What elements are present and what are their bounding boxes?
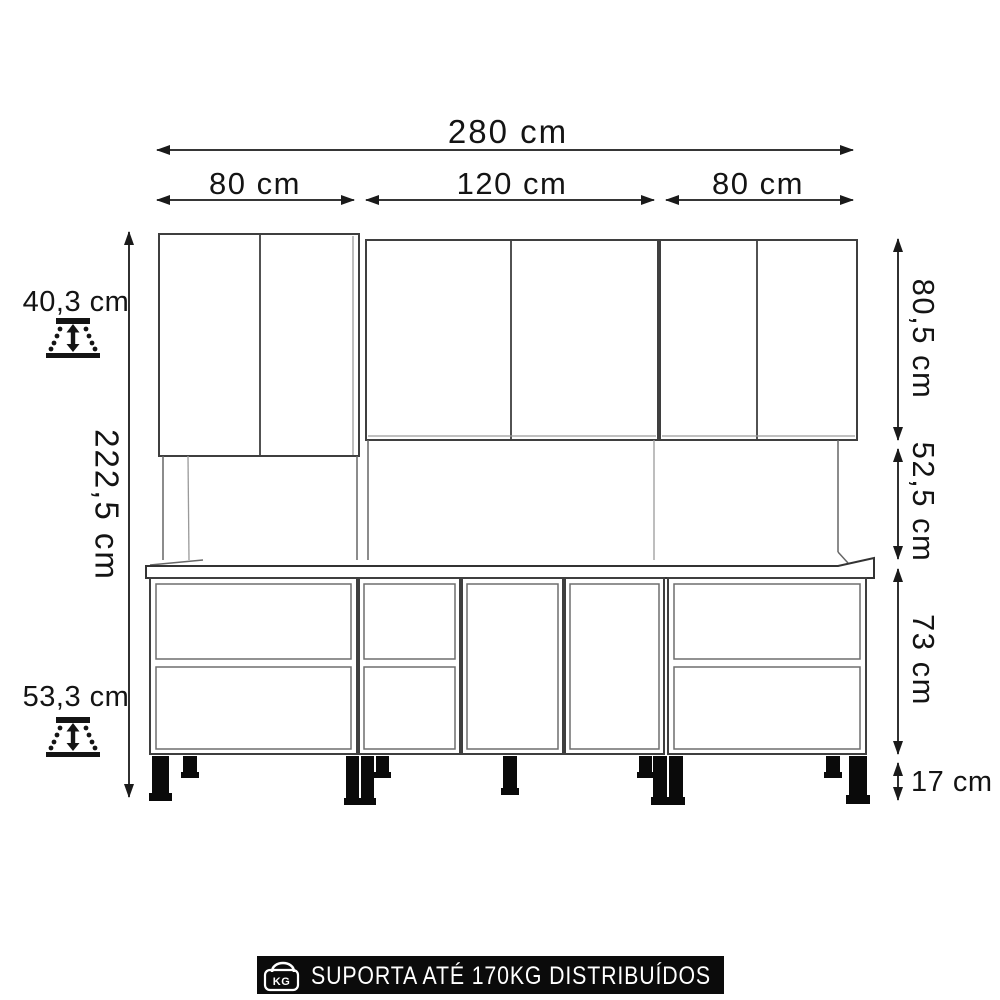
cabinet-drawing [146,234,874,805]
depth-icon [46,318,100,358]
leg [503,756,517,789]
leg-foot [667,797,685,805]
upper-left-body [159,234,359,456]
dim-right-module-label: 80 cm [712,166,804,201]
leg [826,756,840,773]
leg-foot [501,788,519,795]
leg-foot [149,793,172,801]
dim-left-module-label: 80 cm [209,166,301,201]
leg-foot [651,797,669,805]
leg [639,756,652,773]
drawer-front [156,584,351,659]
base-drawer-unit-center [359,578,460,754]
leg-foot [846,795,870,804]
depth-icon [46,717,100,757]
base-door-cabinet-right [565,578,664,754]
countertop-slab [146,558,874,578]
support-banner: KG SUPORTA ATÉ 170KG DISTRIBUÍDOS [257,956,724,994]
leg-foot [374,772,391,778]
drawer-front [364,584,455,659]
countertop-back-edge [150,560,203,565]
dim-total-height-label: 222,5 cm [88,429,125,581]
leg [361,756,374,800]
support-banner-label: SUPORTA ATÉ 170KG DISTRIBUÍDOS [311,961,711,990]
back-panel-flare [838,552,848,563]
kg-icon-label: KG [273,976,291,988]
dim-upper-height-label: 80,5 cm [906,279,941,400]
upper-cabinet-right [660,240,857,440]
leg [376,756,389,773]
leg [653,756,667,799]
base-door-cabinet-left [462,578,563,754]
back-panel-lines [163,440,848,563]
cabinet-legs [149,756,870,805]
drawer-front [156,667,351,749]
drawer-front [674,584,860,659]
dim-base-height-label: 73 cm [906,614,941,706]
leg-foot [181,772,199,778]
door-front [467,584,558,749]
drawer-front [674,667,860,749]
upper-cabinet-left [159,234,359,456]
leg-foot [344,798,361,805]
dim-center-module-label: 120 cm [457,166,568,201]
dim-upper-depth-label: 40,3 cm [23,286,130,318]
drawer-front [364,667,455,749]
leg-foot [824,772,842,778]
leg-foot [637,772,654,778]
dim-gap-height-label: 52,5 cm [906,442,941,563]
countertop [146,558,874,578]
upper-cabinet-center [366,240,658,440]
leg [183,756,197,773]
upper-right-body [660,240,857,440]
back-panel-edge [188,456,189,560]
dim-legs-height-label: 17 cm [911,766,992,798]
leg [152,756,169,794]
leg [346,756,359,800]
right-dimension-lines: 80,5 cm 52,5 cm 73 cm 17 cm [898,239,992,800]
base-drawer-unit-right [668,578,866,754]
leg-foot [359,798,376,805]
base-drawer-unit-left [150,578,357,754]
dim-base-depth-label: 53,3 cm [23,681,130,713]
door-front [570,584,659,749]
top-dimension-lines: 280 cm 80 cm 120 cm 80 cm [157,113,853,201]
base-cabinets [150,578,866,754]
dim-total-width-label: 280 cm [448,113,568,150]
upper-center-body [366,240,658,440]
leg [849,756,867,797]
leg [669,756,683,799]
cabinet-dimension-diagram: 280 cm 80 cm 120 cm 80 cm 222,5 cm 40,3 … [0,0,1000,1000]
